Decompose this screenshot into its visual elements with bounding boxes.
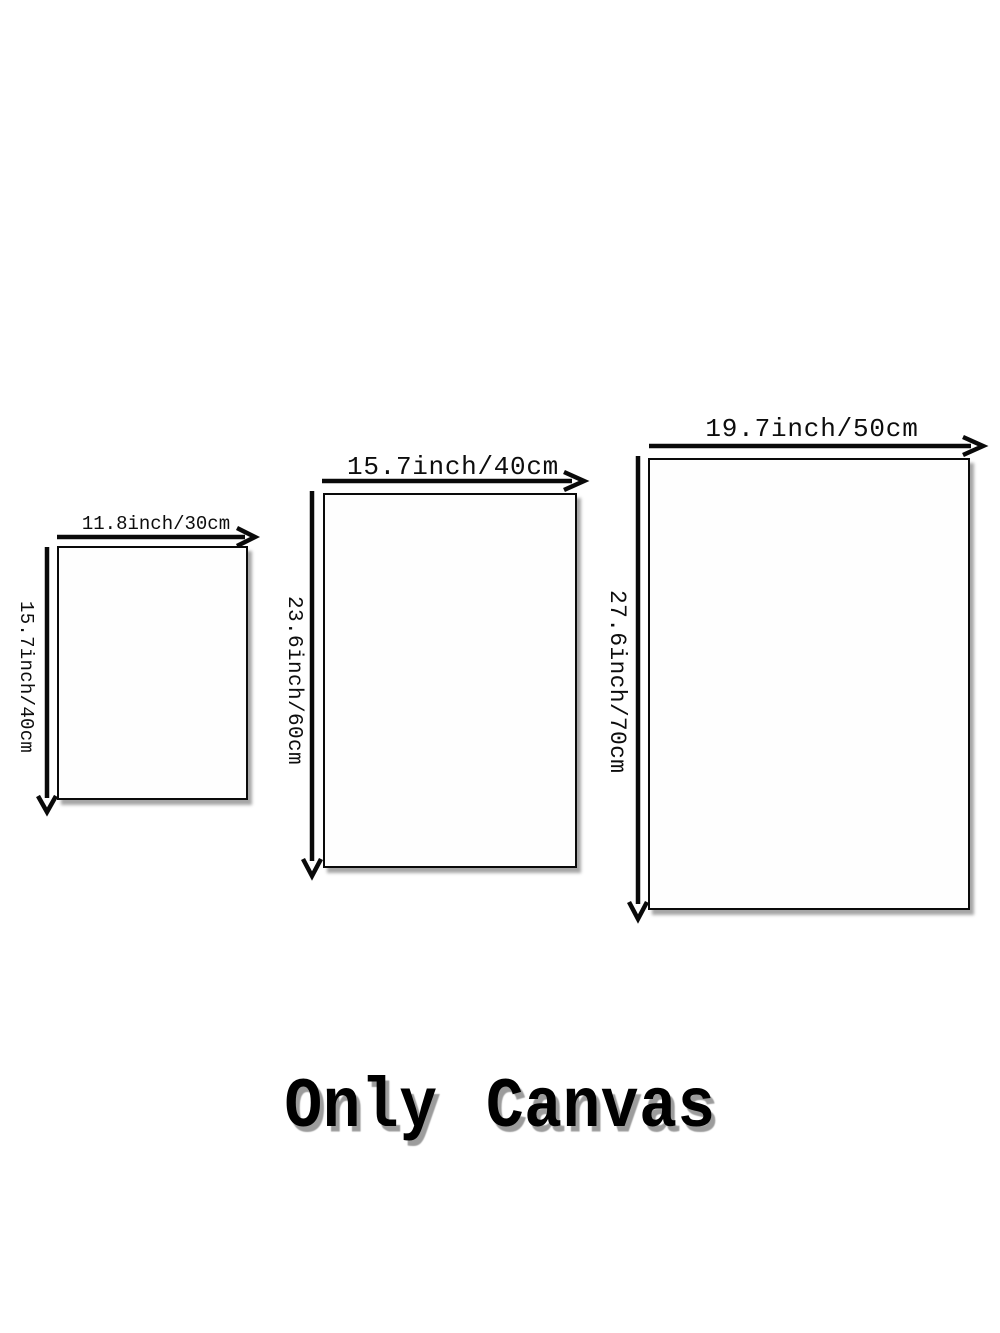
width-label-small: 11.8inch/30cm	[56, 515, 256, 534]
height-label-large: 27.6inch/70cm	[605, 590, 628, 773]
height-arrow-medium	[303, 491, 321, 876]
canvas-rectangle-small	[57, 546, 248, 800]
canvas-rectangle-large	[648, 458, 970, 910]
height-arrow-small	[38, 547, 56, 812]
height-label-medium: 23.6inch/60cm	[283, 596, 304, 765]
page-title: Only Canvas	[0, 1072, 1000, 1143]
height-label-small: 15.7inch/40cm	[16, 601, 35, 753]
size-chart-diagram: 11.8inch/30cm 15.7inch/40cm 15.7inch/40c…	[0, 0, 1000, 1333]
canvas-rectangle-medium	[323, 493, 577, 868]
height-arrow-large	[629, 456, 647, 919]
width-label-medium: 15.7inch/40cm	[323, 454, 583, 480]
width-label-large: 19.7inch/50cm	[648, 416, 976, 442]
